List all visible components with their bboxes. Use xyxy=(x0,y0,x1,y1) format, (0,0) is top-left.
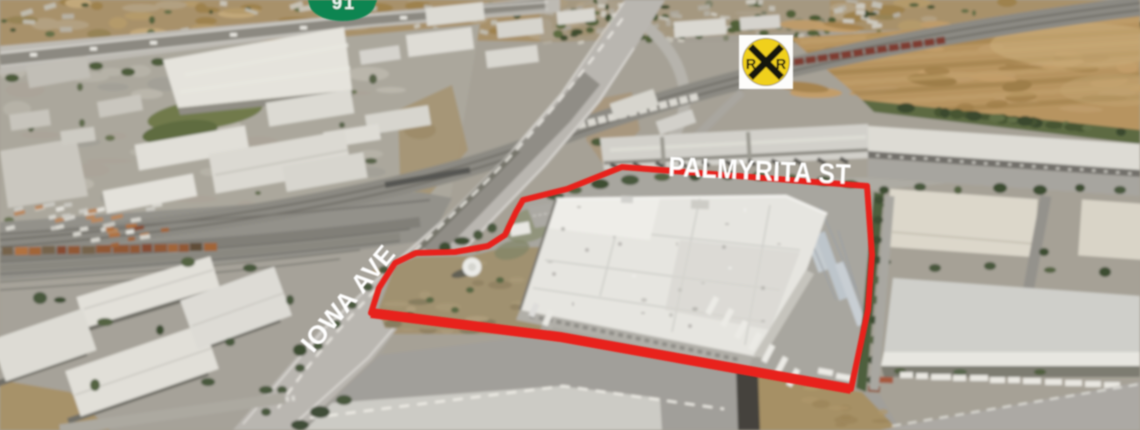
svg-text:R: R xyxy=(776,57,787,73)
svg-text:R: R xyxy=(746,57,757,73)
svg-text:91: 91 xyxy=(332,0,356,13)
